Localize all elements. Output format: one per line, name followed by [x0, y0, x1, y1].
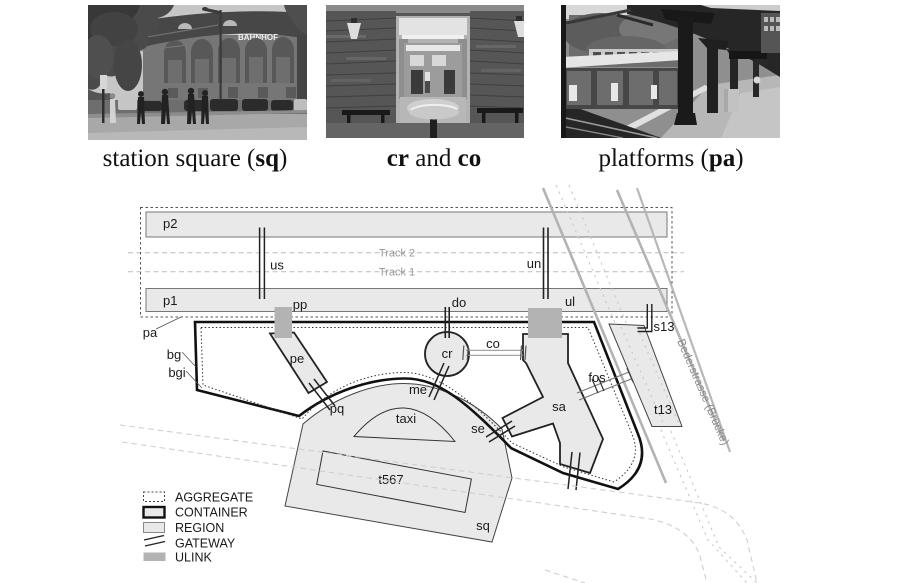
svg-text:CONTAINER: CONTAINER — [175, 506, 248, 520]
svg-text:Track 2: Track 2 — [379, 247, 415, 259]
svg-text:GATEWAY: GATEWAY — [175, 537, 236, 551]
svg-text:Track 1: Track 1 — [379, 267, 415, 279]
svg-text:pq: pq — [330, 401, 344, 416]
svg-text:station square (sq): station square (sq) — [103, 145, 288, 172]
svg-text:taxi: taxi — [396, 411, 416, 426]
svg-text:cr and co: cr and co — [387, 145, 481, 172]
svg-text:pp: pp — [293, 297, 307, 312]
svg-text:fos: fos — [588, 370, 606, 385]
svg-text:us: us — [270, 258, 284, 273]
svg-text:cr: cr — [442, 346, 454, 361]
svg-text:co: co — [486, 336, 500, 351]
svg-text:AGGREGATE: AGGREGATE — [175, 491, 253, 505]
svg-text:ULINK: ULINK — [175, 551, 212, 565]
svg-text:t13: t13 — [654, 402, 672, 417]
svg-text:bg: bg — [167, 347, 181, 362]
svg-text:bgi: bgi — [168, 365, 185, 380]
svg-text:sq: sq — [476, 518, 490, 533]
svg-text:do: do — [452, 295, 466, 310]
svg-text:s13: s13 — [654, 319, 675, 334]
svg-text:pa: pa — [143, 325, 158, 340]
svg-text:t567: t567 — [378, 472, 403, 487]
svg-text:sa: sa — [552, 399, 567, 414]
svg-text:p2: p2 — [163, 216, 177, 231]
svg-text:p1: p1 — [163, 293, 177, 308]
svg-text:un: un — [527, 256, 541, 271]
svg-text:se: se — [471, 421, 485, 436]
svg-text:ul: ul — [565, 294, 575, 309]
svg-text:REGION: REGION — [175, 521, 224, 535]
svg-text:me: me — [409, 382, 427, 397]
svg-text:platforms (pa): platforms (pa) — [598, 145, 743, 172]
svg-text:pe: pe — [290, 351, 304, 366]
